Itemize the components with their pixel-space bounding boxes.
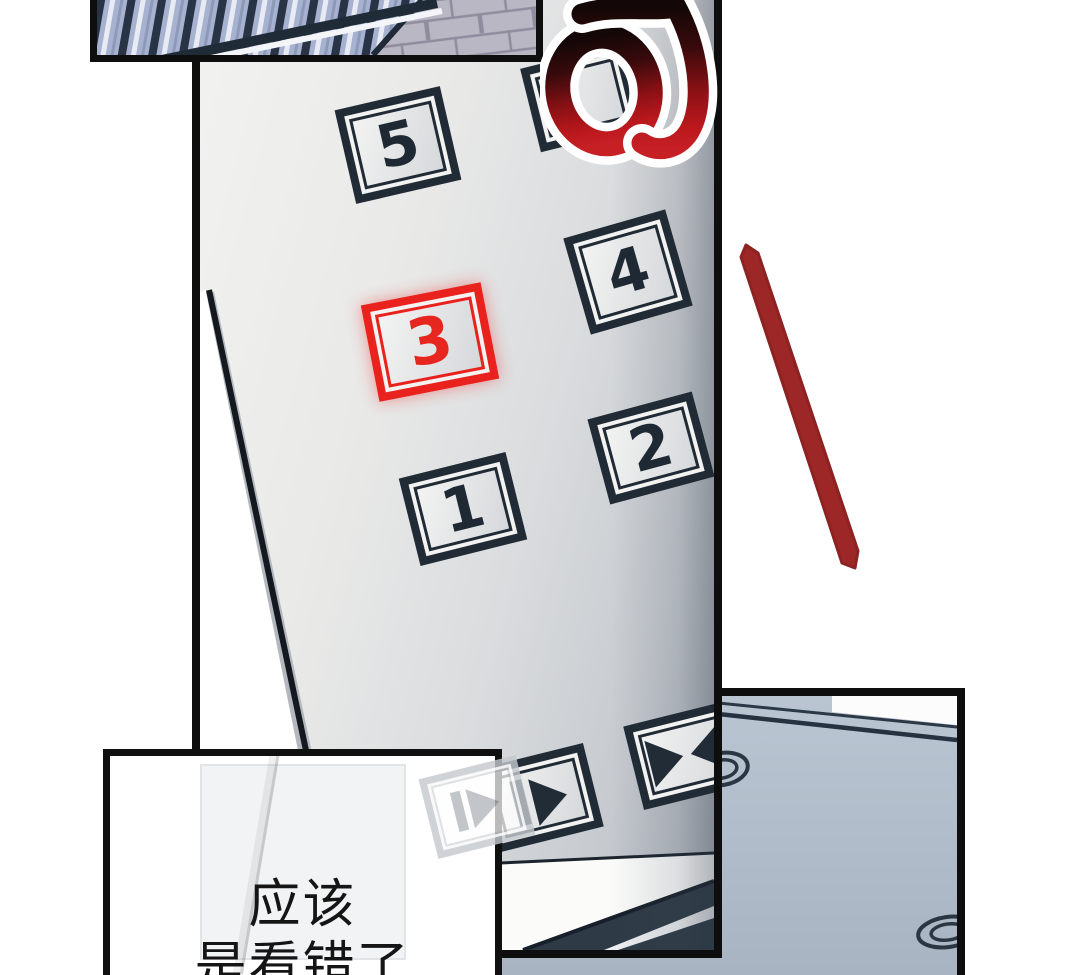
caption-line-1: 应该 xyxy=(110,874,495,936)
arrow-left-icon xyxy=(685,723,722,778)
railing-scene xyxy=(97,0,536,55)
button-label: 5 xyxy=(371,111,425,179)
sfx-ding xyxy=(540,0,740,168)
red-motion-stroke xyxy=(728,233,873,578)
button-label: 1 xyxy=(435,475,490,543)
comic-page: 5 4 3 2 1 xyxy=(0,0,1080,975)
arrow-right-icon xyxy=(528,771,573,826)
caption-text: 应该 是看错了 xyxy=(110,874,495,975)
arrow-right-icon xyxy=(465,782,504,828)
button-label: 4 xyxy=(600,237,657,306)
button-label: 3 xyxy=(402,306,458,377)
button-label: 2 xyxy=(623,414,679,483)
arrow-right-icon xyxy=(644,733,689,788)
caption-line-2: 是看错了 xyxy=(110,936,495,975)
railing-panel xyxy=(90,0,543,62)
